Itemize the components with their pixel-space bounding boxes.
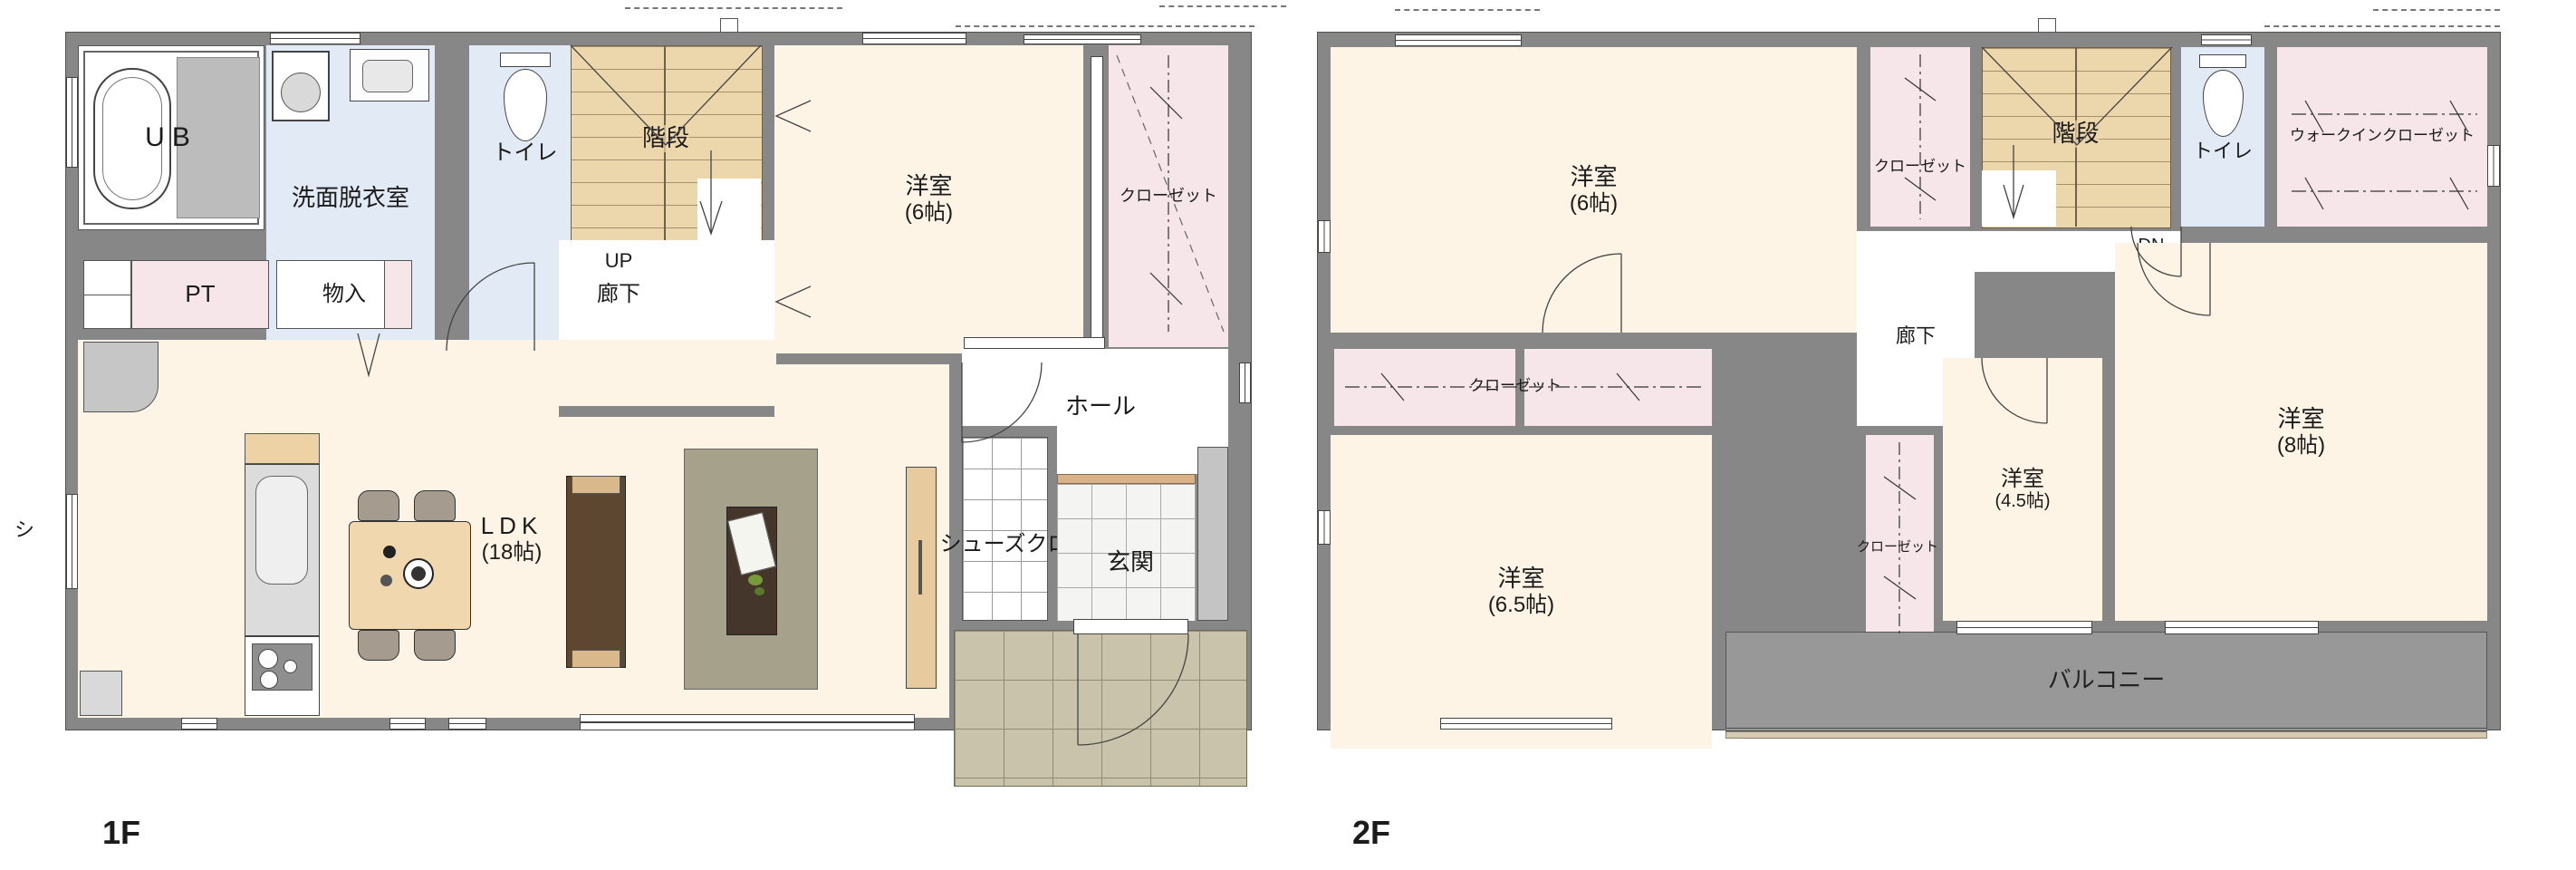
eave-line bbox=[1159, 5, 1286, 7]
room-label-closet-main: クローゼット bbox=[1874, 158, 1966, 176]
room-label-yoshitsu6-2f-size: (6帖) bbox=[1570, 191, 1618, 217]
room-label-rouka-2f-wrap: 廊下 bbox=[1861, 324, 1970, 348]
room-toilet-2f bbox=[2181, 47, 2264, 227]
plate-small bbox=[380, 575, 392, 586]
stairs-2f-landing bbox=[1982, 170, 2056, 227]
room-yoshitsu65: 洋室 (6.5帖) bbox=[1331, 435, 1712, 749]
room-label-kaidan-2f: 階段 bbox=[2052, 121, 2099, 148]
room-label-closet-65: クローゼット bbox=[1469, 377, 1562, 395]
room-label-closet-1f: クローゼット bbox=[1120, 187, 1217, 206]
burner-2 bbox=[284, 660, 297, 673]
washing-machine-drum bbox=[281, 72, 321, 112]
shoe-cabinet bbox=[1197, 447, 1228, 621]
sofa-cushion-bottom bbox=[572, 650, 620, 668]
plant-icon bbox=[755, 587, 764, 595]
room-pt: PT bbox=[131, 260, 269, 329]
sliding-window-ldk bbox=[580, 714, 915, 730]
label-up-wrap: UP bbox=[587, 248, 650, 274]
room-closet-1f: クローゼット bbox=[1109, 45, 1228, 347]
window bbox=[862, 33, 966, 44]
floor-2f-plan: 洋室 (6帖) クローゼット 階段 トイレ ウォークインクローゼット DN 廊下… bbox=[1318, 33, 2500, 749]
room-closet-2f-main bbox=[1870, 47, 1970, 227]
room-label-toilet-1f: トイレ bbox=[493, 140, 558, 166]
floor2-tag: 2F bbox=[1352, 814, 1390, 852]
chair-icon bbox=[358, 490, 399, 521]
room-label-ldk: LDK bbox=[481, 513, 543, 540]
burner-3 bbox=[260, 671, 278, 689]
room-label-yoshitsu45: 洋室 bbox=[2001, 467, 2044, 492]
room-label-yoshitsu45-size: (4.5帖) bbox=[1994, 491, 2050, 512]
entrance-porch bbox=[954, 630, 1247, 787]
burner-1 bbox=[258, 649, 278, 669]
room-yoshitsu8: 洋室 (8帖) bbox=[2115, 243, 2487, 621]
room-label-senmen: 洗面脱衣室 bbox=[292, 185, 409, 212]
window bbox=[66, 77, 78, 168]
room-label-yoshitsu6-1f-size: (6帖) bbox=[905, 200, 953, 226]
room-label-yoshitsu8-size: (8帖) bbox=[2277, 433, 2325, 459]
room-label-closet-45: クローゼット bbox=[1857, 539, 1938, 555]
wall-patch-yoshitsu-ldk bbox=[776, 353, 949, 364]
window bbox=[2201, 34, 2252, 45]
room-label-yoshitsu65-size: (6.5帖) bbox=[1488, 593, 1554, 618]
room-label-rouka-2f: 廊下 bbox=[1896, 324, 1936, 347]
chair-icon bbox=[414, 630, 456, 661]
sliding-window-balcony bbox=[1956, 621, 2092, 634]
sliding-window-balcony bbox=[2165, 621, 2319, 634]
wall-sc-left bbox=[949, 426, 962, 621]
room-label-toilet-2f: トイレ bbox=[2193, 140, 2253, 162]
room-label-wic-wrap: ウォークインクローゼット bbox=[2277, 125, 2487, 147]
label-up: UP bbox=[605, 249, 633, 272]
floor1-tag: 1F bbox=[102, 814, 140, 852]
room-label-monoire: 物入 bbox=[322, 282, 366, 307]
room-label-rouka-1f: 廊下 bbox=[597, 282, 640, 307]
room-ub: UB bbox=[78, 45, 264, 230]
window bbox=[1318, 510, 1331, 545]
wall-sc-right bbox=[1048, 426, 1057, 621]
eave-line bbox=[1395, 9, 1540, 11]
wall-sc-top bbox=[949, 426, 1057, 437]
window bbox=[1318, 220, 1331, 253]
window bbox=[2487, 145, 2500, 187]
toilet-tank bbox=[2199, 54, 2246, 68]
room-label-closet-main-wrap: クローゼット bbox=[1857, 156, 1984, 178]
room-label-rouka-1f-wrap: 廊下 bbox=[573, 281, 664, 308]
base-cabinet bbox=[80, 671, 122, 716]
chair-icon bbox=[358, 630, 399, 661]
room-label-wic: ウォークインクローゼット bbox=[2290, 127, 2475, 145]
front-door-opening bbox=[1073, 619, 1188, 634]
plate-center bbox=[411, 566, 426, 581]
window bbox=[389, 718, 426, 730]
balcony-outer-strip bbox=[1725, 731, 2487, 739]
room-label-closet-65-wrap: クローゼット bbox=[1425, 375, 1606, 397]
room-label-yoshitsu6-1f: 洋室 bbox=[905, 173, 952, 200]
window bbox=[1239, 362, 1251, 403]
sink-basin bbox=[362, 60, 413, 92]
refrigerator-icon bbox=[83, 342, 159, 412]
room-label-yoshitsu65: 洋室 bbox=[1497, 565, 1544, 593]
monoire-shelf bbox=[384, 261, 411, 328]
room-label-kaidan-1f-wrap: 階段 bbox=[571, 123, 761, 154]
room-yoshitsu45: 洋室 (4.5帖) bbox=[1943, 358, 2102, 621]
room-label-genkan-wrap: 玄関 bbox=[1081, 549, 1180, 576]
room-label-kaidan-2f-wrap: 階段 bbox=[1982, 120, 2169, 149]
window bbox=[270, 33, 360, 44]
eave-line bbox=[2264, 25, 2500, 27]
kitchen-sink bbox=[255, 476, 308, 585]
room-label-kaidan-1f: 階段 bbox=[642, 125, 689, 152]
sofa-cushion-top bbox=[572, 476, 620, 494]
window bbox=[181, 718, 217, 730]
stairs-1f-landing bbox=[697, 179, 761, 240]
room-label-ub: UB bbox=[145, 122, 197, 154]
sofa-icon bbox=[566, 476, 626, 668]
room-label-yoshitsu8: 洋室 bbox=[2277, 406, 2324, 433]
sliding-door-hall bbox=[964, 337, 1105, 349]
room-label-toilet-1f-wrap: トイレ bbox=[469, 140, 581, 167]
sliding-door-yoshitsu-closet bbox=[1091, 56, 1103, 343]
room-label-hall: ホール bbox=[1065, 393, 1136, 420]
toilet-icon bbox=[504, 69, 547, 141]
room-yoshitsu6-1f: 洋室 (6帖) bbox=[774, 45, 1083, 353]
pt-shelves bbox=[83, 260, 131, 329]
eave-line bbox=[2373, 9, 2500, 11]
side-note: シ bbox=[14, 518, 34, 542]
vent-box bbox=[720, 18, 738, 33]
wall-patch-corridor-ldk bbox=[559, 406, 774, 417]
window bbox=[1395, 34, 1522, 46]
room-label-yoshitsu6-2f: 洋室 bbox=[1570, 164, 1617, 191]
room-label-pt: PT bbox=[185, 281, 215, 308]
window bbox=[1440, 718, 1612, 730]
balcony: バルコニー bbox=[1725, 632, 2487, 731]
room-shoes-cloak bbox=[962, 437, 1048, 621]
window bbox=[1024, 34, 1141, 44]
room-monoire: 物入 bbox=[276, 260, 412, 329]
window bbox=[66, 494, 78, 589]
genkan-step bbox=[1057, 474, 1196, 484]
toilet-icon bbox=[2203, 70, 2244, 137]
chair-icon bbox=[414, 490, 456, 521]
eave-line bbox=[956, 25, 1254, 27]
plant-icon bbox=[748, 575, 763, 585]
kitchen-cabinet bbox=[245, 433, 320, 464]
room-label-ldk-size: (18帖) bbox=[482, 540, 543, 565]
room-label-genkan: 玄関 bbox=[1107, 549, 1154, 576]
floor-1f-plan: UB 洗面脱衣室 トイレ 階段 UP 廊下 洋室 (6帖) クローゼット PT bbox=[66, 33, 1251, 787]
floorplan-page: { "title_labels": { "floor1": "1F", "flo… bbox=[0, 0, 2576, 870]
room-label-toilet-2f-wrap: トイレ bbox=[2181, 140, 2264, 163]
window bbox=[448, 718, 486, 730]
room-yoshitsu6-2f: 洋室 (6帖) bbox=[1331, 47, 1857, 333]
eave-line bbox=[625, 7, 842, 9]
vent-box bbox=[2038, 18, 2056, 33]
room-label-hall-wrap: ホール bbox=[1028, 393, 1173, 420]
toilet-tank bbox=[500, 53, 551, 67]
room-label-balcony: バルコニー bbox=[2048, 667, 2165, 694]
plate-small bbox=[383, 546, 396, 558]
